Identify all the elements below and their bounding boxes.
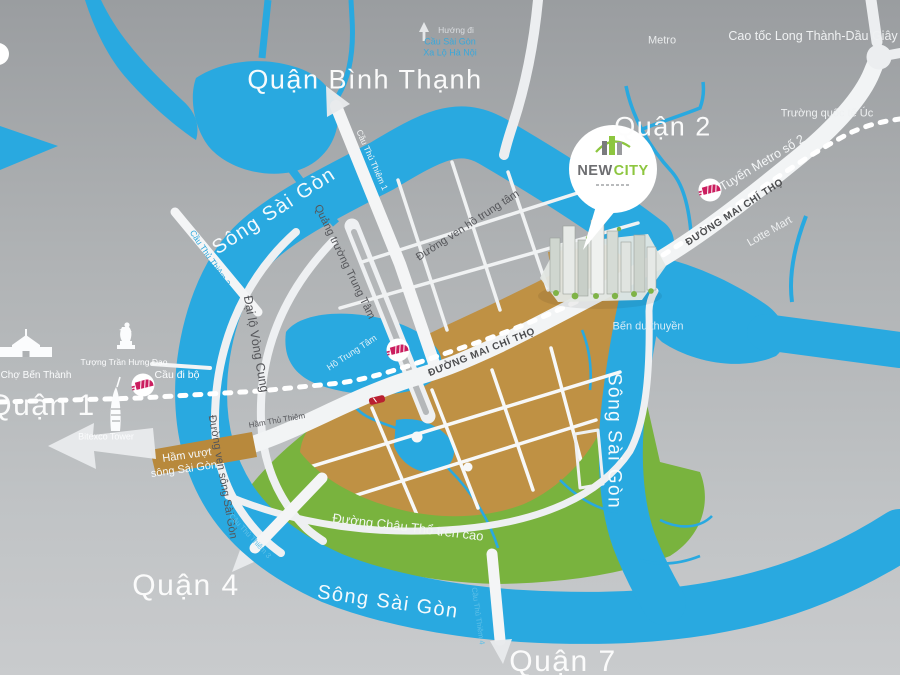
- label-metro: Metro: [648, 36, 676, 47]
- label-cao-toc: Cao tốc Long Thành-Dầu Giây: [728, 30, 897, 43]
- label-district-7: Quận 7: [509, 647, 616, 675]
- label-ben-du-thuyen: Bến du thuyền: [613, 322, 684, 333]
- label-district-2: Quận 2: [614, 114, 712, 141]
- tunnel-arrow-icon: [48, 423, 156, 469]
- metro-train-icon: [131, 374, 155, 397]
- label-cau-sai-gon: Cầu Sài Gòn: [424, 38, 476, 47]
- logo-new: NEW: [577, 164, 612, 179]
- label-cau-di-bo: Cầu đi bộ: [155, 370, 200, 381]
- label-district-binh-thanh: Quận Bình Thạnh: [247, 67, 482, 94]
- label-district-4: Quận 4: [132, 571, 239, 601]
- logo-city: CITY: [614, 164, 649, 179]
- new-city-logo-text: NEWCITY: [577, 164, 648, 179]
- logo-subtitle-line: [596, 184, 630, 186]
- label-truong-quoc-te-uc: Trường quốc tế Úc: [781, 109, 873, 120]
- edge-circle: [0, 43, 9, 65]
- roundabout: [867, 45, 892, 70]
- label-xa-lo-ha-noi: Xa Lộ Hà Nội: [423, 49, 477, 58]
- tran-hung-dao-statue-icon: [117, 322, 135, 349]
- label-bitexco-tower: Bitexco Tower: [78, 433, 134, 442]
- label-cho-ben-thanh: Chợ Bến Thành: [1, 371, 72, 381]
- label-tuong-tran-hung-dao: Tượng Trần Hưng Đạo: [81, 358, 168, 367]
- location-map: Quận Bình Thạnh Hướng đi Cầu Sài Gòn Xa …: [0, 0, 900, 675]
- bitexco-tower-icon: [110, 377, 121, 431]
- label-huong-di: Hướng đi: [438, 26, 474, 35]
- ben-thanh-market-icon: [0, 329, 52, 357]
- label-district-1: Quận 1: [0, 391, 96, 421]
- label-song-sai-gon-e: Sông Sài Gòn: [605, 373, 624, 509]
